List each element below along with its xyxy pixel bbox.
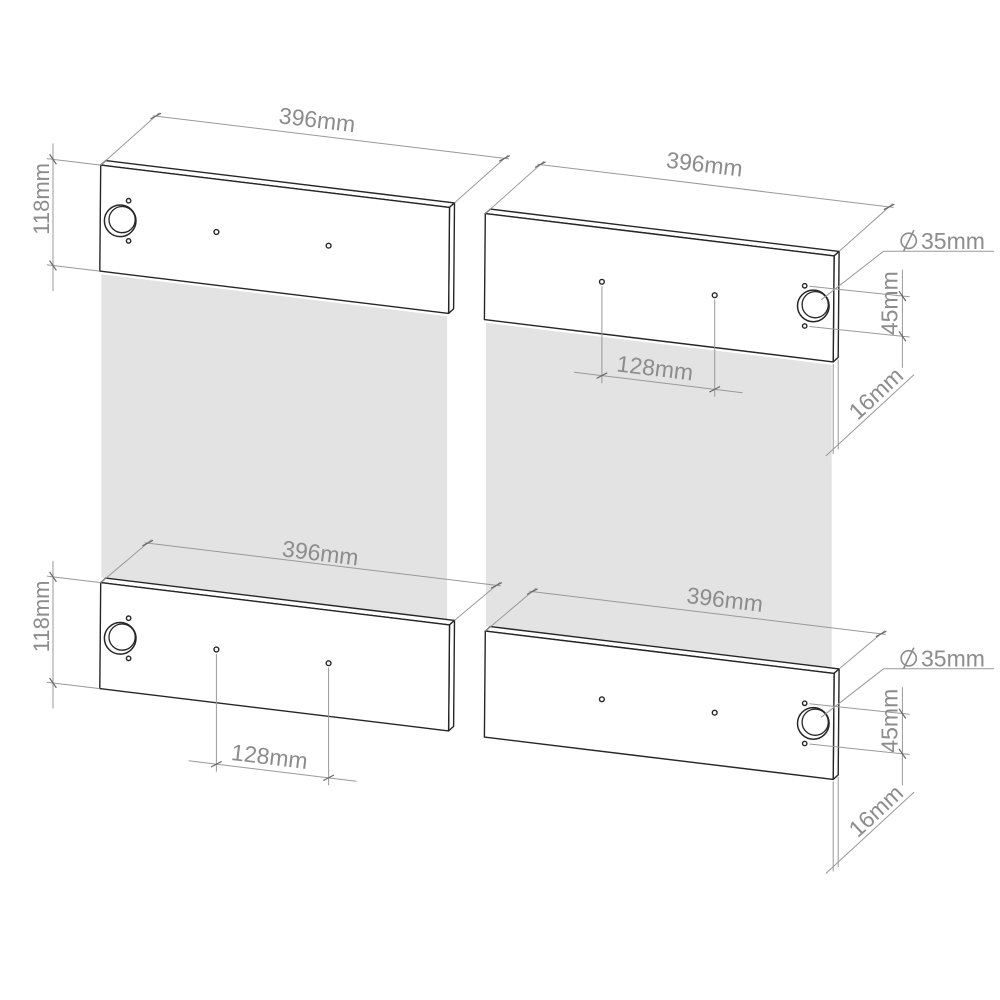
- svg-text:45mm: 45mm: [877, 689, 903, 753]
- svg-text:45mm: 45mm: [877, 271, 903, 335]
- svg-text:118mm: 118mm: [29, 163, 54, 235]
- svg-text:35mm: 35mm: [921, 646, 985, 672]
- svg-text:118mm: 118mm: [29, 581, 54, 653]
- svg-text:35mm: 35mm: [921, 228, 985, 254]
